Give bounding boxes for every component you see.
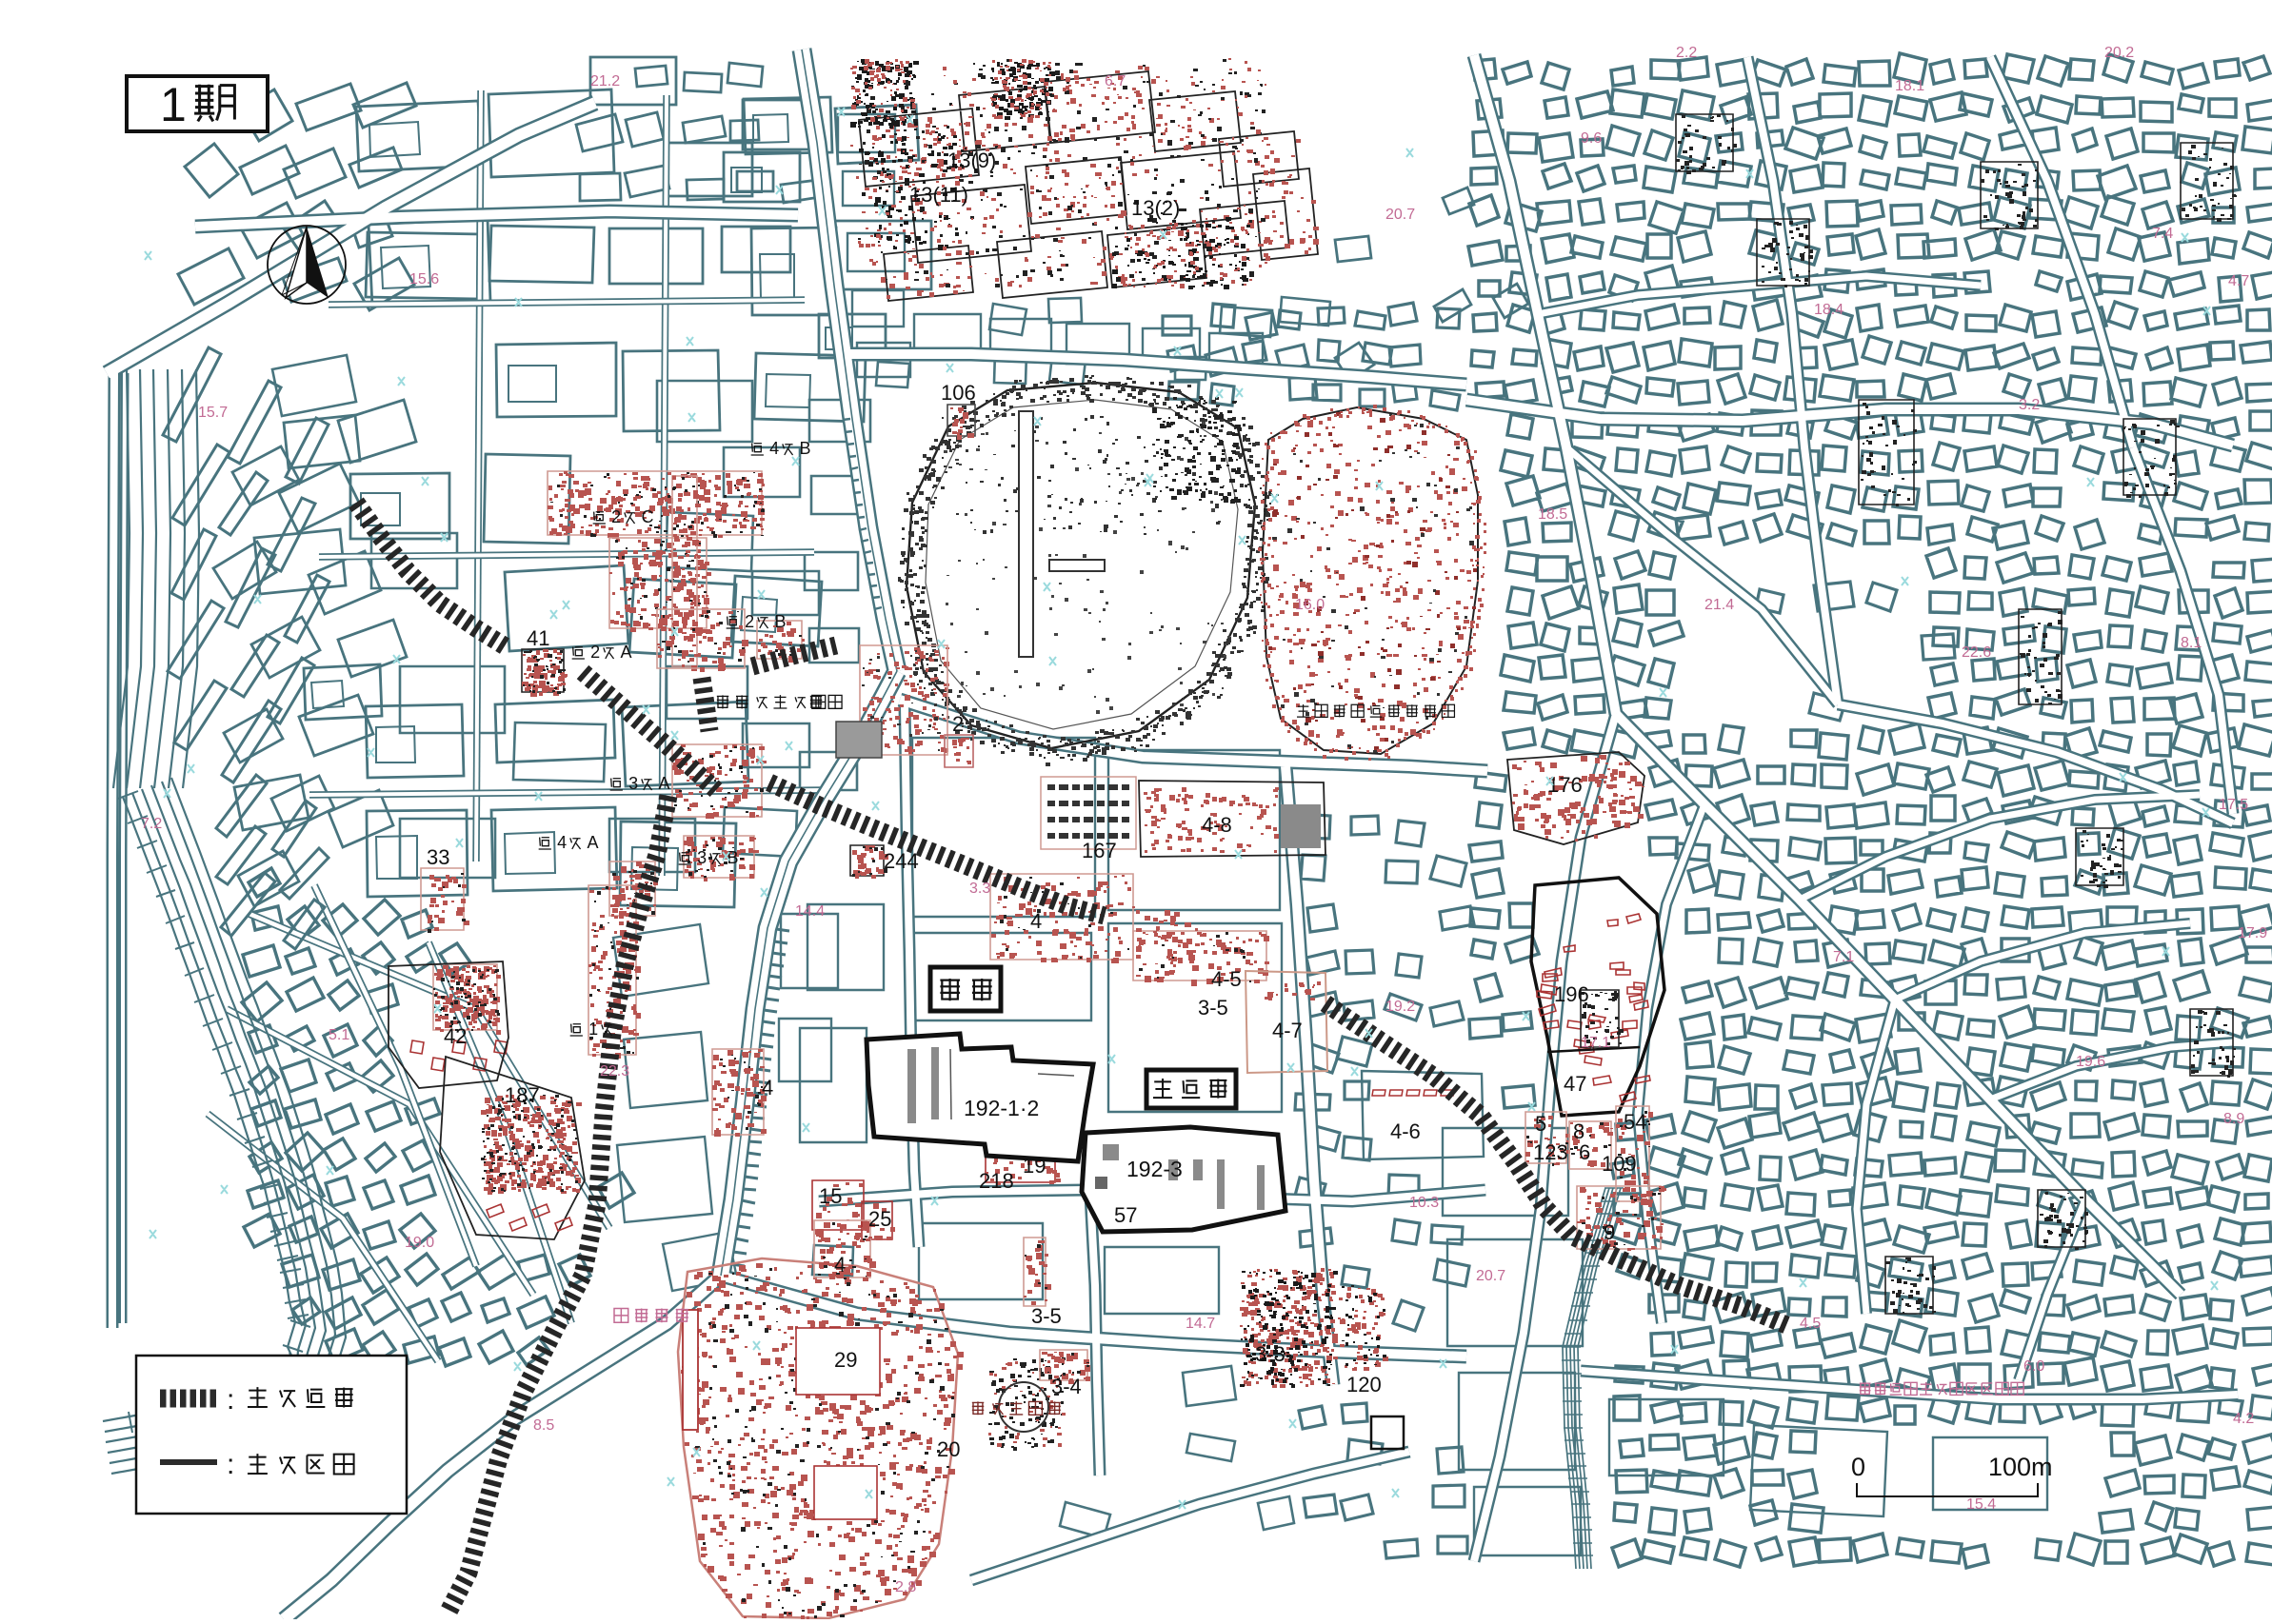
svg-text:6: 6 — [1579, 1140, 1590, 1164]
svg-text:3-4: 3-4 — [1051, 1375, 1082, 1398]
svg-text:4: 4 — [762, 1076, 773, 1099]
svg-text:196: 196 — [1554, 982, 1589, 1006]
svg-text:2.2: 2.2 — [1676, 45, 1697, 61]
svg-text:4: 4 — [834, 1253, 846, 1277]
svg-text:1: 1 — [160, 78, 187, 131]
svg-text:13(11): 13(11) — [909, 183, 968, 207]
svg-text:1: 1 — [588, 1020, 598, 1039]
svg-text:2: 2 — [952, 712, 964, 736]
svg-text:4.7: 4.7 — [2228, 273, 2249, 289]
svg-text:100m: 100m — [1988, 1453, 2053, 1481]
svg-text:19.0: 19.0 — [405, 1235, 434, 1251]
svg-text:7.1: 7.1 — [1833, 949, 1854, 965]
svg-text:20.7: 20.7 — [1476, 1268, 1505, 1284]
svg-text:6.0: 6.0 — [2023, 1358, 2044, 1375]
svg-text:2: 2 — [611, 507, 621, 526]
svg-text:192-3: 192-3 — [1126, 1157, 1183, 1181]
svg-text:3: 3 — [697, 848, 707, 867]
svg-text:18.4: 18.4 — [1814, 302, 1844, 318]
svg-text:2: 2 — [745, 612, 754, 631]
svg-text:4-7: 4-7 — [1272, 1019, 1303, 1042]
svg-text:3.2: 3.2 — [2019, 397, 2040, 413]
svg-text:3.3: 3.3 — [969, 881, 990, 897]
svg-text:42: 42 — [444, 1024, 467, 1048]
svg-text:4-6: 4-6 — [1390, 1119, 1421, 1143]
svg-text:0: 0 — [1851, 1453, 1865, 1481]
svg-text:13(9): 13(9) — [947, 149, 996, 172]
svg-text:17.1: 17.1 — [1581, 1035, 1610, 1051]
svg-text:A: A — [587, 833, 598, 852]
svg-text:5.1: 5.1 — [329, 1027, 349, 1043]
svg-text:20.7: 20.7 — [1385, 207, 1415, 223]
svg-text:18.1: 18.1 — [1895, 78, 1924, 94]
svg-text:8.1: 8.1 — [2181, 635, 2202, 651]
svg-text:192-1·2: 192-1·2 — [964, 1096, 1039, 1120]
svg-text:21.4: 21.4 — [1704, 597, 1734, 613]
svg-text:B: B — [799, 439, 810, 458]
svg-text:6.7: 6.7 — [1105, 73, 1126, 89]
svg-text:13(2): 13(2) — [1131, 196, 1180, 220]
svg-text:9: 9 — [1604, 1220, 1615, 1244]
svg-text:17.9: 17.9 — [2238, 925, 2267, 941]
svg-text:106: 106 — [941, 381, 976, 405]
svg-text:20.2: 20.2 — [2104, 45, 2134, 61]
svg-text:57: 57 — [1114, 1203, 1137, 1227]
svg-text:19.6: 19.6 — [2076, 1054, 2105, 1070]
svg-text:4: 4 — [1030, 909, 1042, 933]
svg-text:C: C — [641, 507, 653, 526]
svg-text:244: 244 — [884, 849, 919, 873]
svg-text:16.0: 16.0 — [1295, 597, 1325, 613]
svg-text:4-5: 4-5 — [1211, 967, 1242, 991]
svg-text:17.5: 17.5 — [2219, 797, 2248, 813]
svg-text:29: 29 — [834, 1348, 857, 1372]
svg-text:54: 54 — [1624, 1110, 1646, 1134]
svg-text:15.6: 15.6 — [409, 271, 439, 287]
svg-text::: : — [227, 1449, 234, 1480]
svg-text:7.2: 7.2 — [141, 816, 162, 832]
svg-text:10.3: 10.3 — [1409, 1195, 1439, 1211]
svg-text:41: 41 — [527, 626, 549, 650]
svg-text:B: B — [727, 848, 738, 867]
svg-text:19: 19 — [1023, 1154, 1046, 1178]
svg-text:21.2: 21.2 — [590, 73, 620, 89]
svg-text::: : — [227, 1384, 234, 1416]
svg-text:14.4: 14.4 — [795, 903, 825, 920]
svg-text:22.3: 22.3 — [600, 1063, 629, 1079]
svg-text:8.5: 8.5 — [533, 1417, 554, 1434]
svg-text:187: 187 — [505, 1083, 540, 1107]
svg-text:3-3: 3-3 — [1255, 1342, 1285, 1366]
svg-text:15.4: 15.4 — [1966, 1496, 1996, 1513]
svg-text:A: A — [620, 643, 631, 662]
svg-text:5: 5 — [1535, 1112, 1546, 1136]
svg-text:109: 109 — [1602, 1152, 1637, 1176]
svg-text:A: A — [658, 774, 669, 793]
svg-text:33: 33 — [427, 845, 449, 869]
svg-text:2: 2 — [590, 643, 600, 662]
svg-text:3: 3 — [628, 774, 638, 793]
svg-text:15.7: 15.7 — [198, 405, 228, 421]
svg-text:19.2: 19.2 — [1385, 999, 1415, 1015]
svg-text:3-5: 3-5 — [1198, 996, 1228, 1020]
svg-text:8.9: 8.9 — [2223, 1111, 2244, 1127]
svg-text:120: 120 — [1346, 1373, 1382, 1396]
svg-text:4-8: 4-8 — [1202, 813, 1232, 837]
svg-text:15: 15 — [819, 1184, 842, 1208]
svg-text:218: 218 — [979, 1169, 1014, 1193]
svg-text:167: 167 — [1082, 839, 1117, 862]
svg-text:18.5: 18.5 — [1538, 506, 1567, 523]
svg-text:4.2: 4.2 — [2233, 1411, 2254, 1427]
svg-text:22.6: 22.6 — [1962, 644, 1991, 661]
svg-text:14.7: 14.7 — [1186, 1316, 1215, 1332]
svg-text:4: 4 — [557, 833, 567, 852]
svg-text:4: 4 — [769, 439, 779, 458]
svg-text:25: 25 — [868, 1207, 891, 1231]
svg-text:123: 123 — [1533, 1140, 1568, 1164]
svg-text:2.8: 2.8 — [895, 1579, 916, 1595]
svg-text:9.6: 9.6 — [1581, 130, 1602, 147]
svg-text:3-5: 3-5 — [1031, 1304, 1062, 1328]
svg-text:4.5: 4.5 — [1800, 1316, 1821, 1332]
svg-text:7.4: 7.4 — [2152, 226, 2173, 242]
svg-text:20: 20 — [937, 1437, 960, 1461]
svg-text:B: B — [774, 612, 786, 631]
svg-text:47: 47 — [1564, 1072, 1586, 1096]
